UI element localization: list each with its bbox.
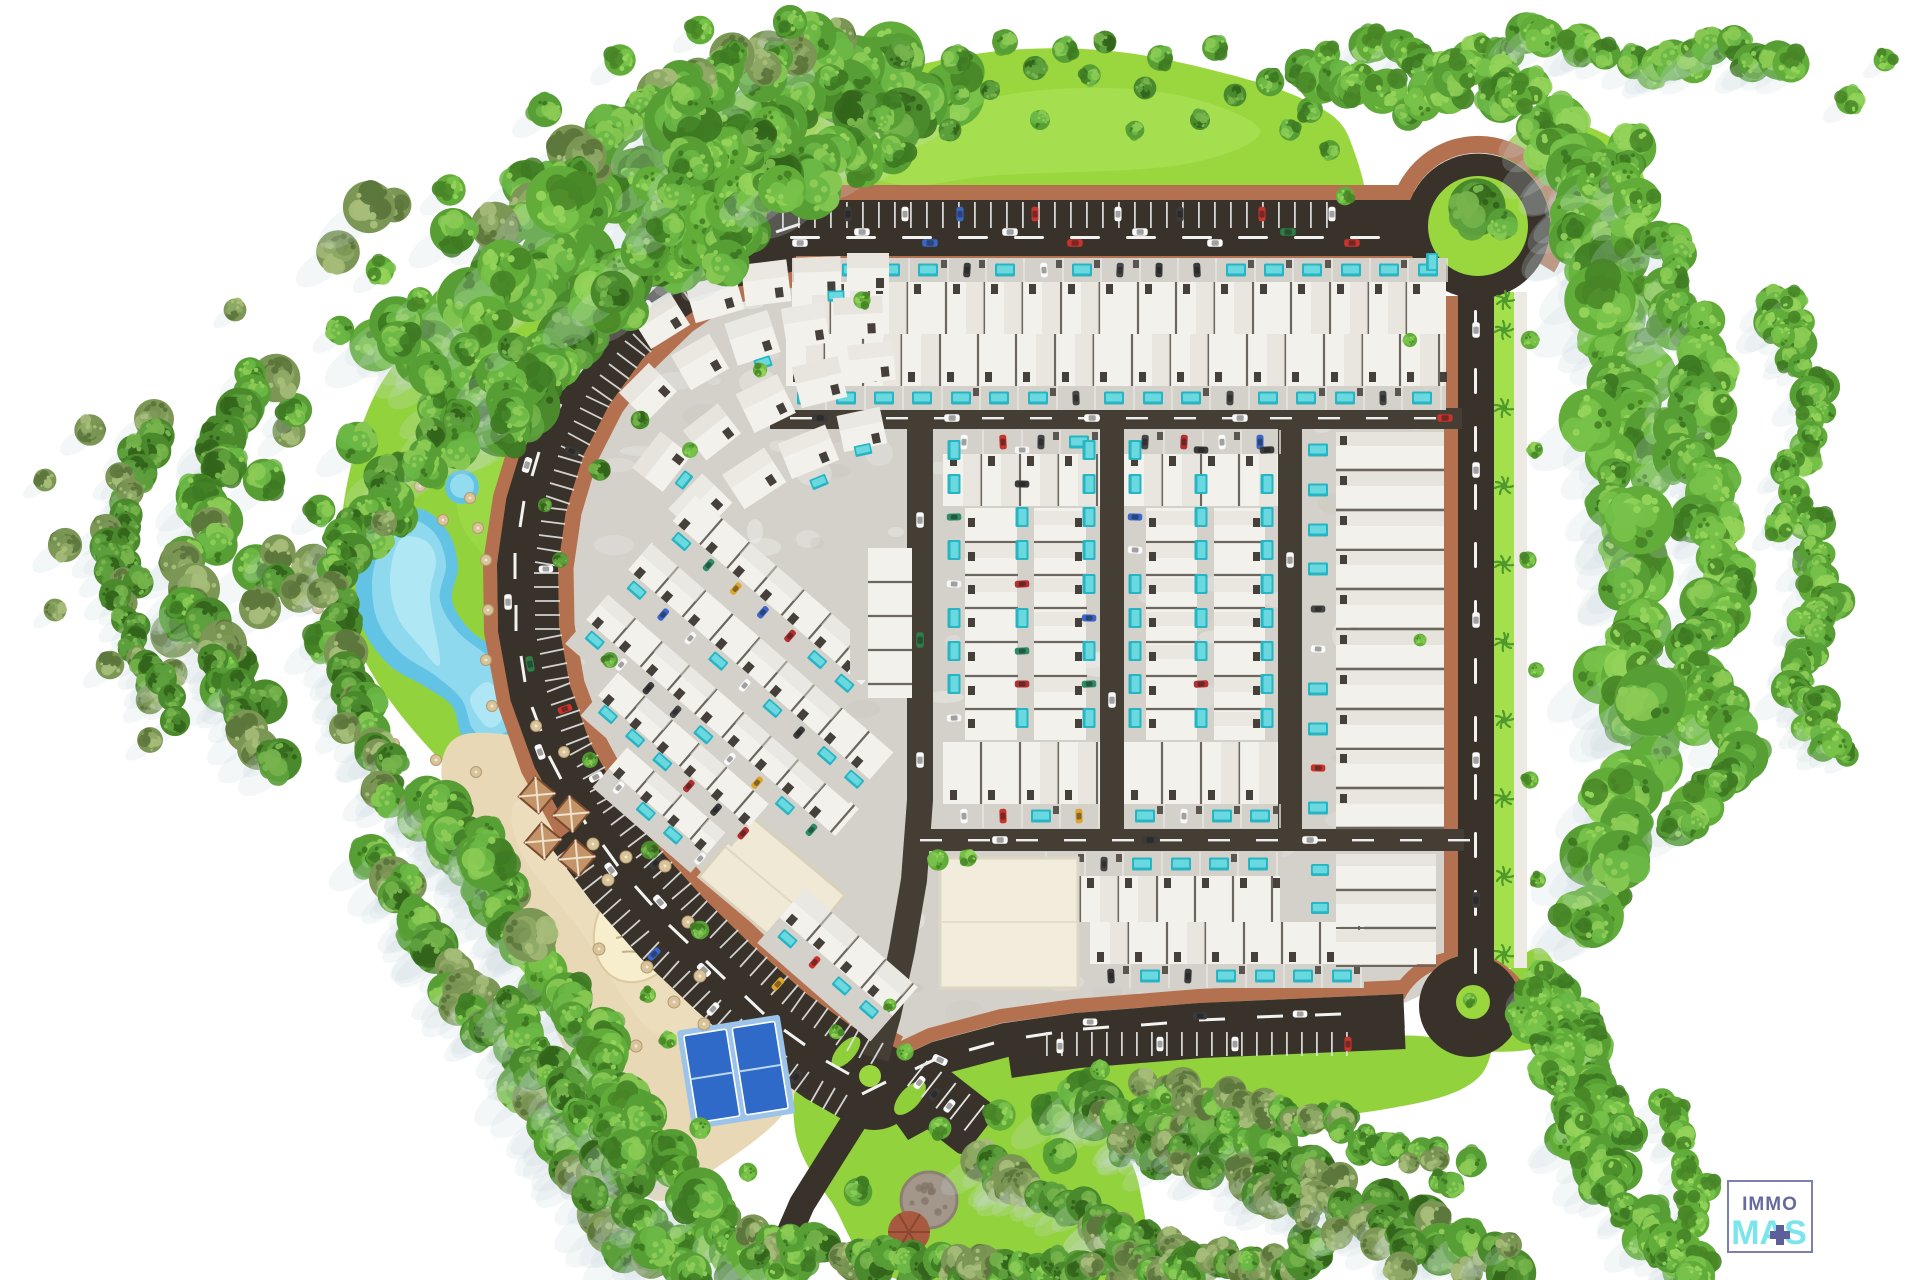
svg-text:MAS: MAS (1731, 1214, 1807, 1252)
svg-text:IMMO: IMMO (1742, 1194, 1798, 1215)
